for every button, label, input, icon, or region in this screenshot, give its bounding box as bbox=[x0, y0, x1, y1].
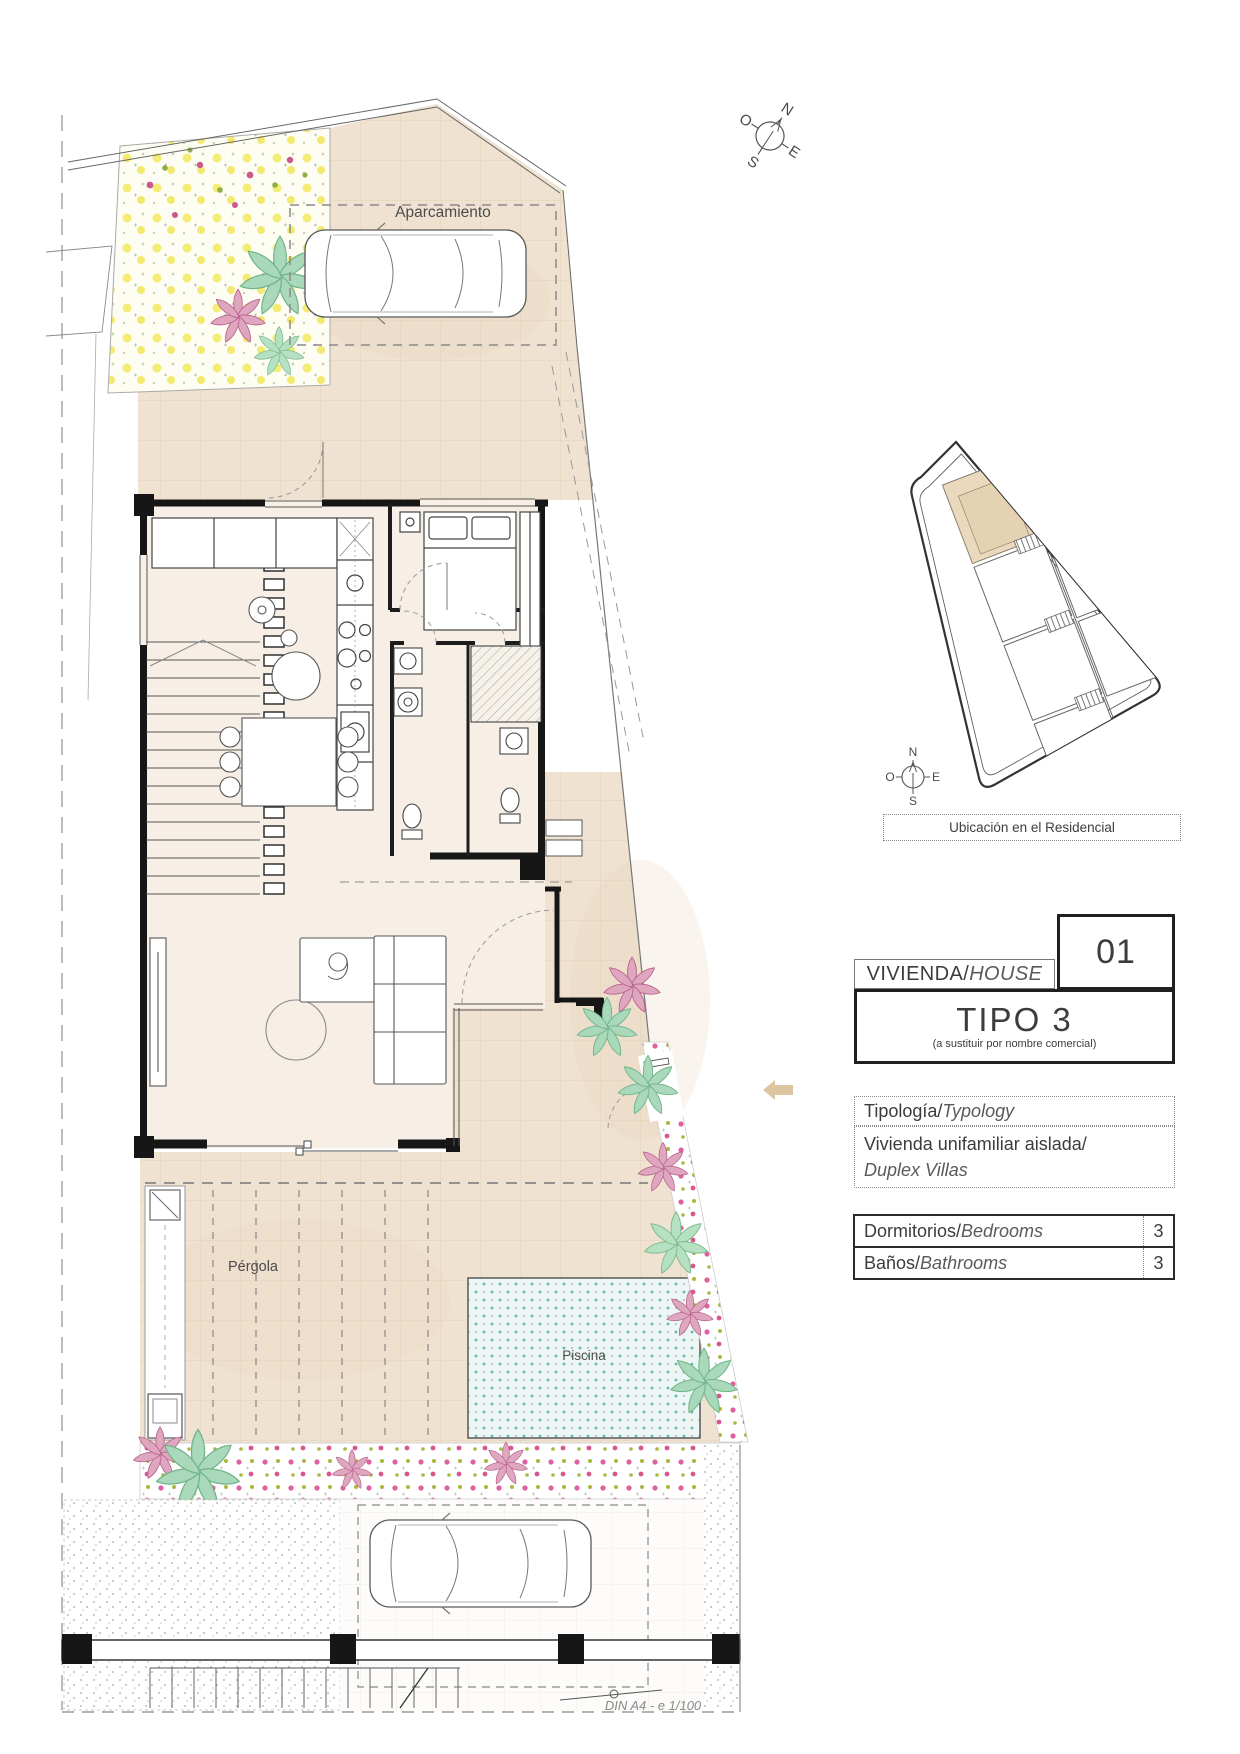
parking-label: Aparcamiento bbox=[395, 204, 491, 221]
type-title: TIPO 3 bbox=[956, 1003, 1073, 1036]
compass-rose: N S O E bbox=[719, 83, 820, 188]
location-plan-caption-text: Ubicación en el Residencial bbox=[949, 820, 1115, 835]
bathrooms-label-en: Bathrooms bbox=[920, 1253, 1007, 1273]
bathrooms-value: 3 bbox=[1143, 1248, 1173, 1278]
location-compass-e: E bbox=[932, 770, 940, 784]
spec-table: Dormitorios/Bedrooms 3 Baños/Bathrooms 3 bbox=[853, 1214, 1175, 1280]
pergola-label: Pérgola bbox=[228, 1259, 279, 1275]
bedrooms-label-en: Bedrooms bbox=[961, 1221, 1043, 1241]
house-label-es: VIVIENDA/ bbox=[867, 963, 970, 986]
house-label-box: VIVIENDA/HOUSE bbox=[854, 959, 1055, 989]
compass-o: O bbox=[736, 110, 755, 131]
compass-n: N bbox=[778, 100, 796, 120]
location-compass-o: O bbox=[885, 770, 894, 784]
typology-value-es: Vivienda unifamiliar aislada/ bbox=[855, 1131, 1174, 1157]
sheet-scale-text: DIN A4 - e 1/100 bbox=[605, 1698, 701, 1713]
bathrooms-label-es: Baños/ bbox=[864, 1253, 920, 1273]
plan-sheet: N S O E bbox=[0, 0, 1240, 1754]
typology-value-en: Duplex Villas bbox=[855, 1157, 1174, 1183]
car-top-view bbox=[305, 223, 526, 324]
pool-label: Piscina bbox=[562, 1348, 606, 1363]
location-plan-caption: Ubicación en el Residencial bbox=[883, 814, 1181, 841]
compass-e: E bbox=[785, 142, 803, 162]
garden-bed bbox=[108, 128, 330, 393]
type-note: (a sustituir por nombre comercial) bbox=[933, 1038, 1097, 1050]
car-top-view-street bbox=[370, 1513, 591, 1614]
entrance-arrow-icon bbox=[763, 1080, 793, 1100]
location-compass-s: S bbox=[909, 794, 917, 808]
typology-label-es: Tipología/ bbox=[864, 1101, 942, 1121]
compass-s: S bbox=[744, 153, 762, 173]
typology-value-box: Vivienda unifamiliar aislada/ Duplex Vil… bbox=[854, 1126, 1175, 1188]
bedrooms-value: 3 bbox=[1143, 1216, 1173, 1246]
typology-label-en: Typology bbox=[942, 1101, 1014, 1121]
typology-label-box: Tipología/Typology bbox=[854, 1096, 1175, 1126]
location-compass: N S O E bbox=[885, 745, 940, 808]
site-plan-drawing: N S O E bbox=[0, 0, 1240, 1754]
bathrooms-row: Baños/Bathrooms 3 bbox=[855, 1246, 1173, 1278]
location-plan: N S O E bbox=[885, 431, 1197, 808]
sheet-scale-note: DIN A4 - e 1/100 bbox=[558, 1698, 748, 1713]
bedrooms-row: Dormitorios/Bedrooms 3 bbox=[855, 1216, 1173, 1246]
location-compass-n: N bbox=[909, 745, 918, 759]
unit-number: 01 bbox=[1096, 933, 1136, 972]
bedrooms-label-es: Dormitorios/ bbox=[864, 1221, 961, 1241]
unit-number-box: 01 bbox=[1057, 914, 1175, 990]
type-box: TIPO 3 (a sustituir por nombre comercial… bbox=[854, 989, 1175, 1064]
house-label-en: HOUSE bbox=[969, 963, 1042, 986]
